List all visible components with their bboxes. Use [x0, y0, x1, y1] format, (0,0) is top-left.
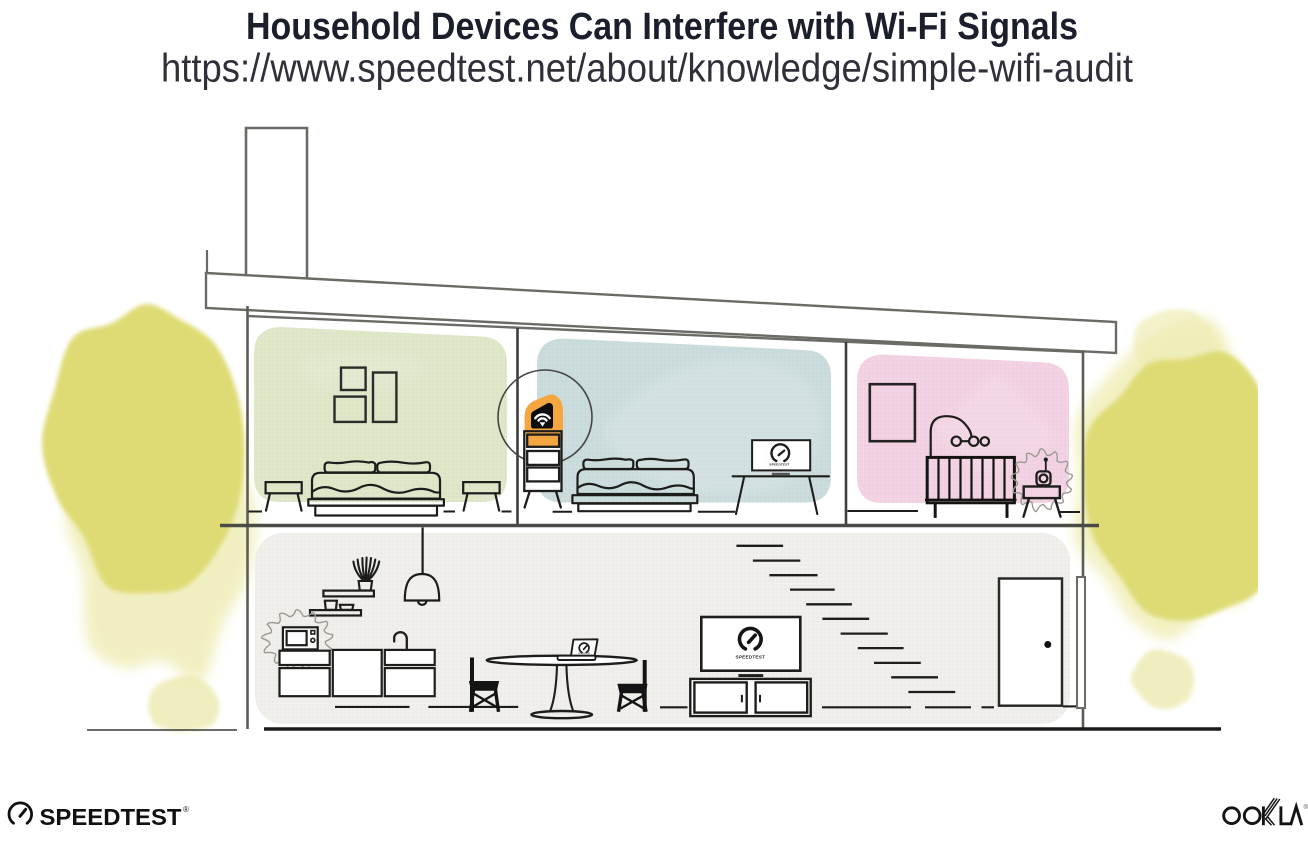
svg-text:SPEEDTEST: SPEEDTEST: [736, 655, 766, 660]
svg-text:®: ®: [1304, 804, 1308, 811]
svg-text:Household Devices Can Interfer: Household Devices Can Interfere with Wi-…: [246, 6, 1078, 48]
svg-text:SPEEDTEST: SPEEDTEST: [769, 463, 789, 467]
svg-text:SPEEDTEST: SPEEDTEST: [40, 804, 183, 830]
svg-text:SPEEDTEST: SPEEDTEST: [578, 653, 591, 655]
svg-text:https://www.speedtest.net/abou: https://www.speedtest.net/about/knowledg…: [161, 47, 1133, 91]
svg-text:®: ®: [183, 805, 189, 814]
